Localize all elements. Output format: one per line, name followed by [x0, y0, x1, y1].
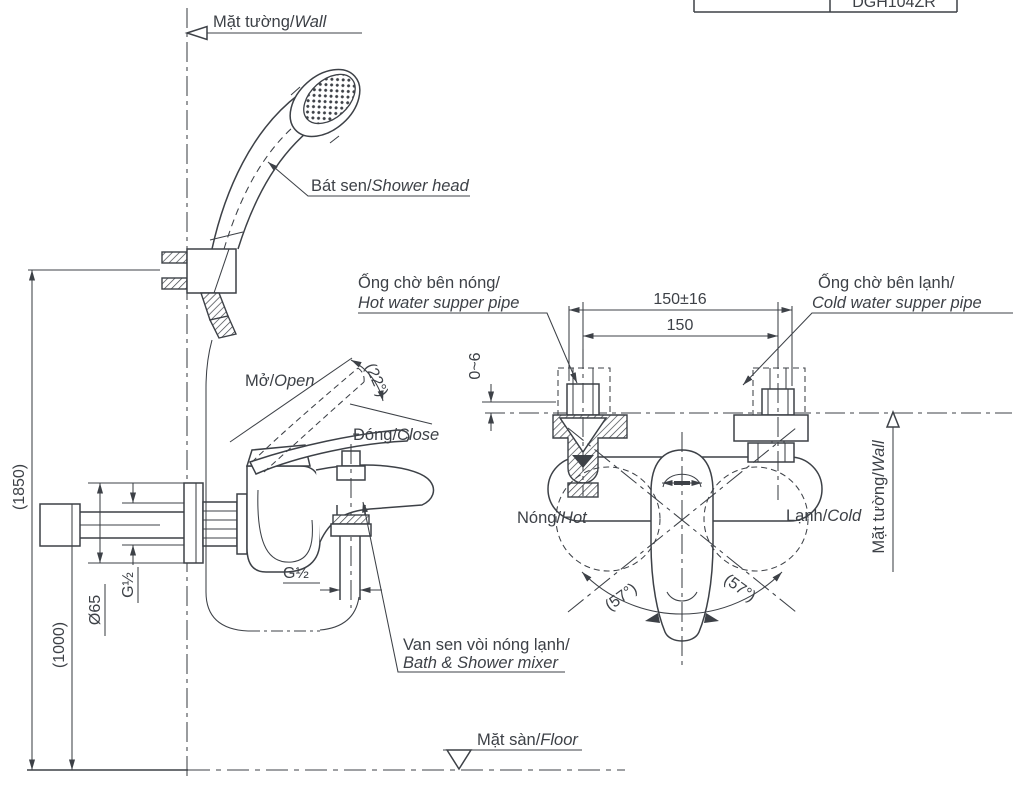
- mixer-side-view: (22°): [40, 340, 433, 631]
- shower-hose-cone: [201, 293, 228, 320]
- mixer-label-vi: Van sen vòi nóng lạnh/: [403, 636, 570, 654]
- wall-right-label: Mặt tường/Wall: [870, 412, 899, 572]
- wall-plate: [184, 483, 203, 563]
- dim-swing-right: (57°): [721, 571, 759, 605]
- shower-head-label: Bát sen/Shower head: [268, 162, 470, 196]
- hot-pipe-vi: Ống chờ bên nóng/: [358, 272, 500, 292]
- hose-wall-side: [206, 340, 248, 631]
- wall-right-text: Mặt tường/Wall: [870, 439, 888, 554]
- dim-span-tolerance: 150±16: [653, 291, 706, 308]
- supply-socket: [40, 504, 80, 546]
- dim-plate-diameter: Ø65: [87, 595, 104, 625]
- span-dimensions: 150±16 150: [569, 291, 792, 386]
- shower-head-face: [277, 56, 373, 150]
- shower-head-drawing: [162, 56, 373, 338]
- wall-screw: [162, 278, 187, 289]
- wall-top-text: Mặt tường/Wall: [213, 13, 328, 31]
- dim-open-angle: (22°): [361, 361, 391, 400]
- dim-1000: (1000): [51, 622, 68, 668]
- mixer-label-en: Bath & Shower mixer: [403, 654, 559, 672]
- dim-1850: (1850): [11, 464, 28, 510]
- dim-wall-gap: 0~6: [467, 352, 484, 379]
- dim-swing-left: (57°): [602, 580, 640, 614]
- dim-spout-thread: G½: [283, 565, 309, 582]
- spout-thread-dimension: G½: [283, 565, 382, 590]
- shower-head-text: Bát sen/Shower head: [311, 177, 470, 195]
- shower-bracket: [187, 249, 236, 293]
- dim-span: 150: [667, 317, 694, 334]
- dim-wall-thread: G½: [120, 572, 137, 598]
- wall-right-arrowhead: [887, 412, 899, 427]
- mixer-front-view: 0~6: [467, 291, 1012, 668]
- mixer-body: [247, 466, 320, 572]
- title-block-fragment: DGH104ZR: [694, 0, 957, 12]
- height-dimensions: (1850) (1000) Ø65 G½: [11, 270, 184, 770]
- floor-label: Mặt sàn/Floor: [477, 731, 579, 749]
- wall-top-label: Mặt tường/Wall: [187, 13, 362, 40]
- mixer-label: Van sen vòi nóng lạnh/ Bath & Shower mix…: [363, 502, 570, 672]
- wall-arrowhead: [187, 27, 207, 40]
- product-code: DGH104ZR: [852, 0, 936, 11]
- cold-pipe-en: Cold water supper pipe: [812, 294, 982, 312]
- close-label: Đóng/Close: [353, 426, 439, 444]
- cold-pipe-vi: Ống chờ bên lạnh/: [818, 272, 955, 292]
- technical-drawing-page: DGH104ZR Mặt tường/Wall Bát sen/Shower h…: [0, 0, 1020, 792]
- cold-label: Lạnh/Cold: [786, 507, 862, 525]
- wall-screw: [162, 252, 187, 263]
- floor-symbol: [447, 750, 471, 769]
- shower-hose-cone: [210, 316, 236, 338]
- hot-pipe-en: Hot water supper pipe: [358, 294, 519, 312]
- shower-handle: [212, 95, 298, 249]
- gap-dimension: 0~6: [467, 352, 556, 431]
- hot-label: Nóng/Hot: [517, 509, 588, 527]
- coupling-nut: [203, 502, 237, 546]
- open-label: Mở/Open: [245, 372, 315, 390]
- hose-drop: [320, 597, 359, 630]
- floor-group: Mặt sàn/Floor: [27, 731, 625, 770]
- technical-drawing-canvas: DGH104ZR Mặt tường/Wall Bát sen/Shower h…: [0, 0, 1020, 792]
